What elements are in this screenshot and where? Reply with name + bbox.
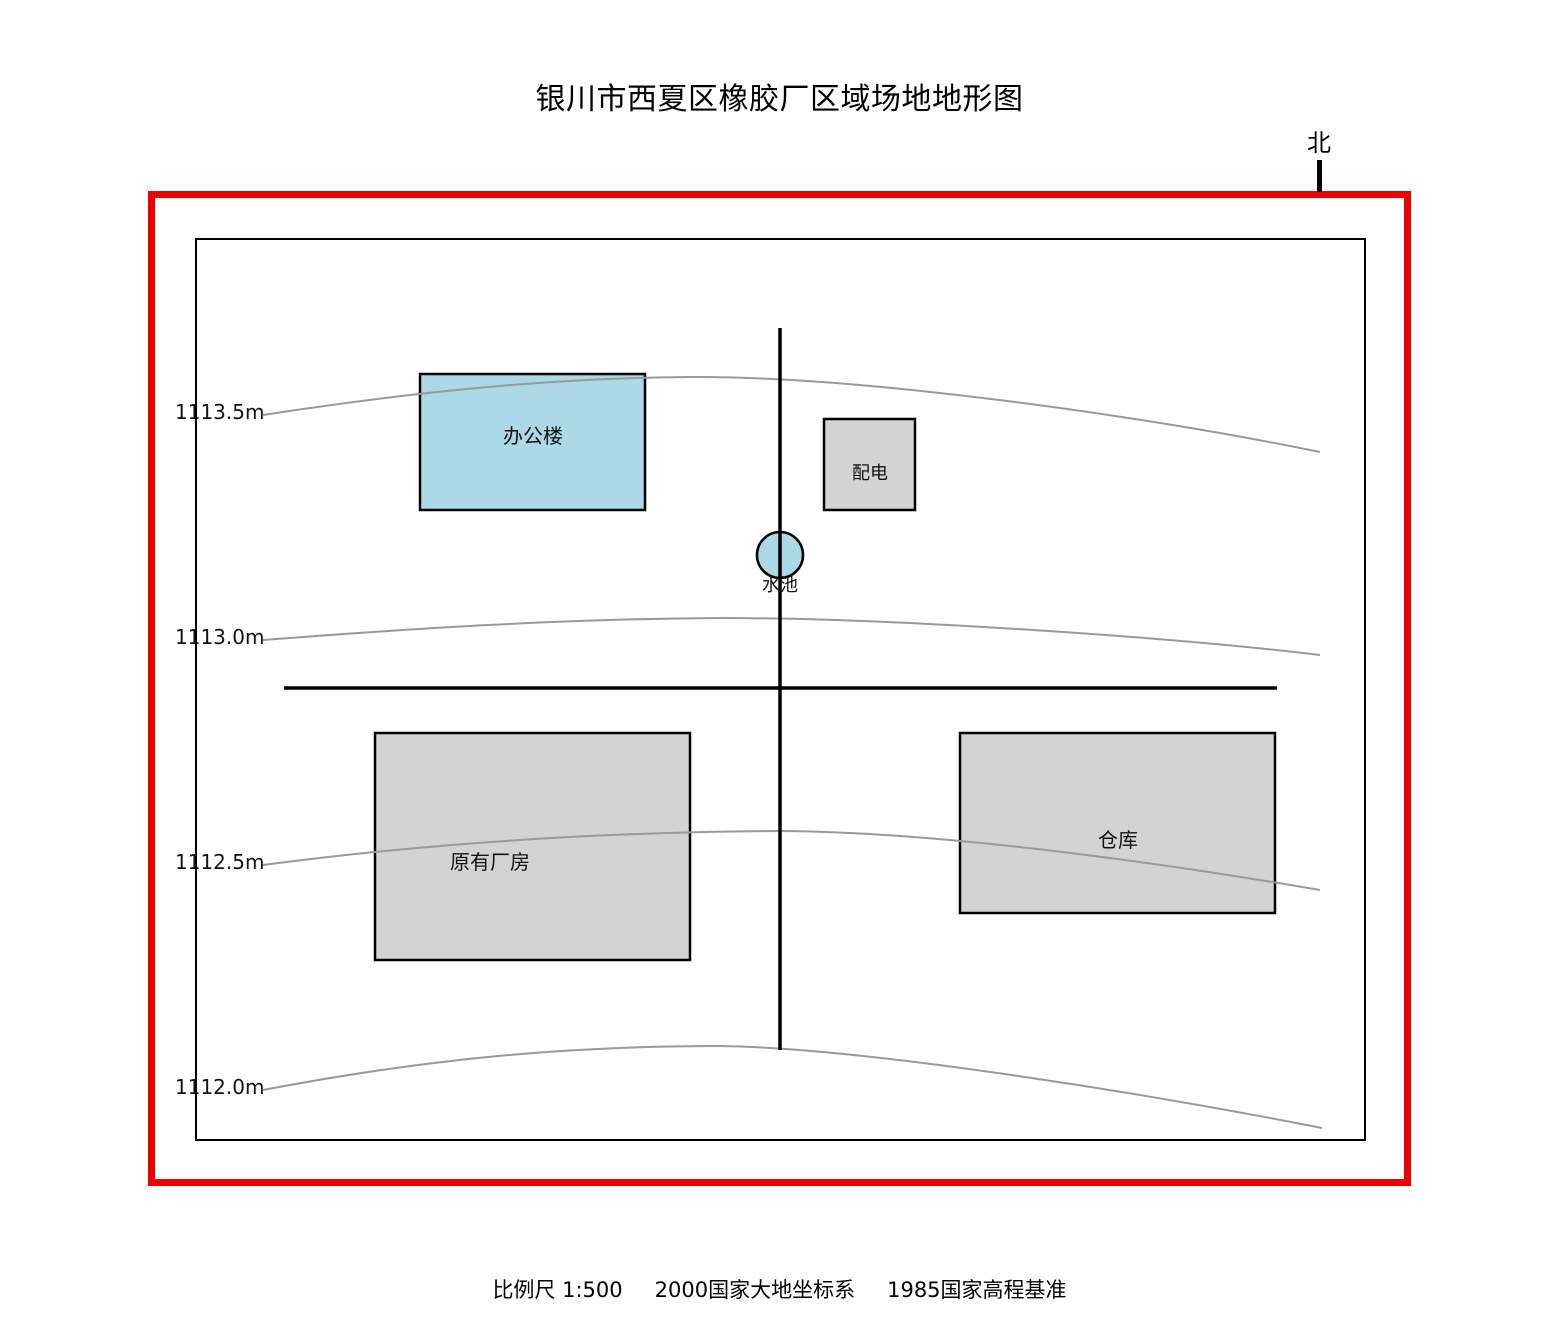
contour-label-1112-5: 1112.5m bbox=[175, 850, 264, 874]
office-label: 办公楼 bbox=[503, 424, 563, 448]
map-footer: 比例尺 1:500 2000国家大地坐标系 1985国家高程基准 bbox=[0, 1274, 1559, 1304]
existing-factory-label: 原有厂房 bbox=[450, 850, 530, 874]
coordinate-system-note: 2000国家大地坐标系 bbox=[655, 1274, 855, 1304]
elevation-datum-note: 1985国家高程基准 bbox=[887, 1274, 1066, 1304]
contour-line-1112-0 bbox=[263, 1046, 1322, 1128]
contour-label-1113-5: 1113.5m bbox=[175, 400, 264, 424]
site-map: 北 1113.5m 1113.0m 1112.5m 1112.0m 办公楼 配电… bbox=[0, 0, 1559, 1335]
scale-note: 比例尺 1:500 bbox=[492, 1274, 622, 1304]
power-distribution-label: 配电 bbox=[852, 463, 888, 484]
water-pool-label: 水池 bbox=[762, 575, 798, 596]
building-warehouse bbox=[960, 733, 1275, 913]
contour-label-1113-0: 1113.0m bbox=[175, 625, 264, 649]
contour-line-1113-0 bbox=[263, 618, 1320, 655]
north-label: 北 bbox=[1307, 129, 1331, 157]
topographic-map-page: 银川市西夏区橡胶厂区域场地地形图 北 1113.5m 1113.0m 1112.… bbox=[0, 0, 1559, 1335]
warehouse-label: 仓库 bbox=[1098, 828, 1138, 852]
contour-label-1112-0: 1112.0m bbox=[175, 1075, 264, 1099]
